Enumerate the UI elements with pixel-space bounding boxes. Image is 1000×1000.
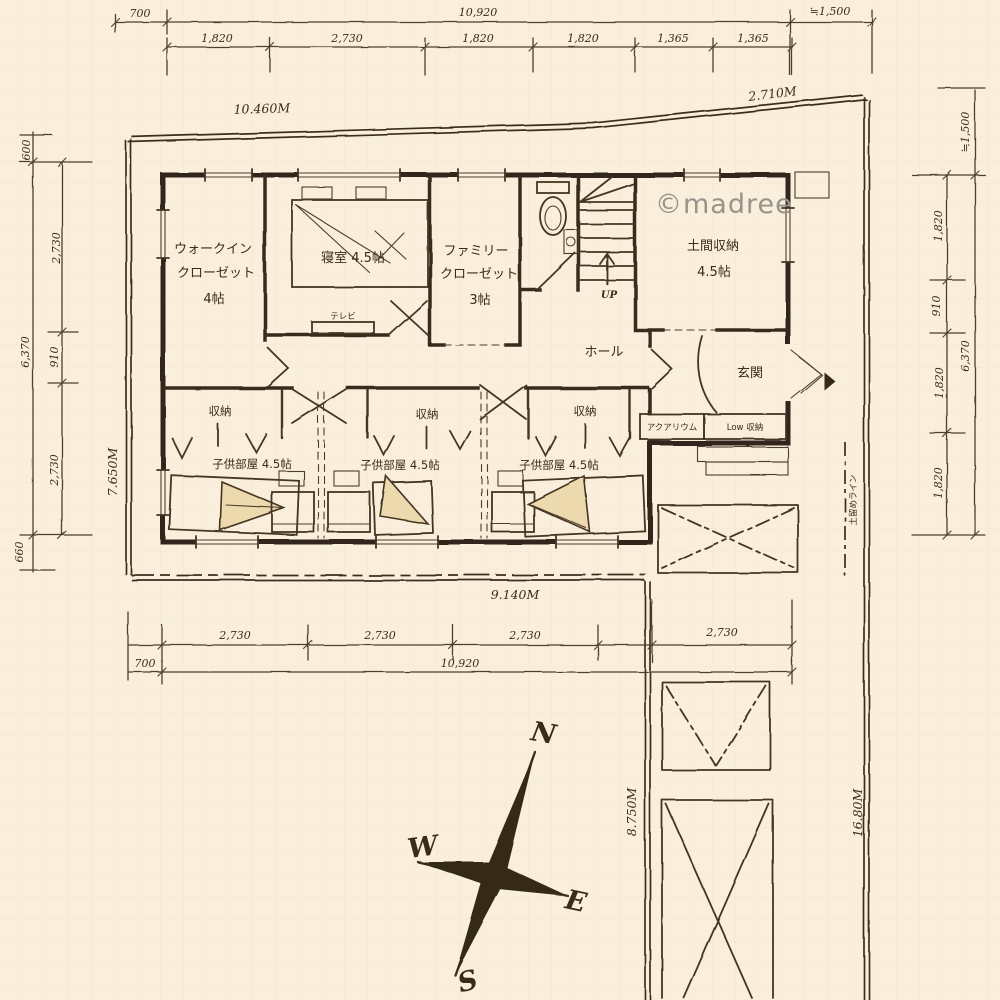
- dim-bottom-total: 10,920: [441, 657, 480, 670]
- watermark: ©madree: [655, 189, 793, 220]
- site-edge-right: 16.80M: [850, 788, 865, 838]
- room-label-kids: 子供部屋 4.5帖: [519, 458, 598, 472]
- room-label-kids: 子供部屋 4.5帖: [212, 457, 291, 471]
- room-label-doma: 土間収納: [687, 239, 739, 254]
- dim-left-seg: 910: [48, 347, 61, 368]
- dim-left-bottom: 660: [13, 542, 26, 563]
- site-corner-marker: [124, 133, 132, 141]
- dim-bottom-seg: 2,730: [363, 629, 396, 642]
- tv-label: テレビ: [330, 312, 356, 322]
- room-label-genkan: 玄関: [737, 366, 763, 381]
- dim-top-seg: 2,730: [330, 32, 363, 45]
- closet-label: 収納: [209, 404, 232, 418]
- room-label-family-closet-size: 3帖: [469, 293, 490, 308]
- dim-left-total: 6,370: [19, 336, 32, 368]
- dim-bottom-seg: 2,730: [218, 629, 251, 642]
- retaining-line-label: 土留めライン: [848, 474, 859, 525]
- dim-right-seg: 1,820: [933, 367, 946, 399]
- floor-plan-drawing: 700 10,920 ≒1,500 1,820 2,730 1,820 1,82…: [0, 0, 1000, 1000]
- dim-right-seg: 910: [930, 296, 943, 317]
- dim-right-approx: ≒1,500: [959, 112, 972, 153]
- room-label-hall: ホール: [584, 345, 623, 360]
- site-edge-left: 7.650M: [105, 447, 120, 497]
- dim-left-seg: 2,730: [48, 454, 61, 487]
- aquarium-label: アクアリウム: [647, 423, 698, 433]
- dim-bottom-offset: 700: [135, 657, 156, 670]
- dim-top-seg: 1,365: [657, 32, 689, 45]
- dim-top-seg: 1,820: [201, 32, 233, 45]
- dim-top-offset: 700: [130, 7, 151, 20]
- site-corner-marker: [644, 574, 652, 582]
- dim-left-top: 600: [20, 140, 33, 161]
- room-label-wic: ウォークイン: [174, 242, 252, 257]
- dim-top-seg: 1,820: [567, 32, 599, 45]
- dim-top-seg: 1,820: [462, 32, 494, 45]
- site-edge-inner-right: 8.750M: [624, 787, 639, 837]
- dim-top-approx: ≒1,500: [810, 5, 851, 18]
- site-edge-top: 10.460M: [233, 100, 291, 117]
- dim-right-total: 6,370: [959, 340, 972, 372]
- dim-bottom-seg: 2,730: [508, 629, 541, 642]
- room-label-wic: クローゼット: [177, 266, 255, 281]
- room-label-wic-size: 4帖: [203, 292, 224, 307]
- room-label-doma-size: 4.5帖: [697, 265, 731, 280]
- dim-right-seg: 1,820: [932, 467, 945, 499]
- dim-right-seg: 1,820: [932, 210, 945, 242]
- closet-label: 収納: [416, 407, 439, 421]
- floor-plan-page: 700 10,920 ≒1,500 1,820 2,730 1,820 1,82…: [0, 0, 1000, 1000]
- room-label-family-closet: ファミリー: [443, 244, 508, 259]
- closet-label: 収納: [574, 404, 597, 418]
- low-storage-label: Low 収納: [727, 422, 763, 433]
- site-edge-bottom: 9.140M: [491, 587, 541, 602]
- dim-bottom-seg: 2,730: [705, 626, 738, 639]
- stairs-up-label: UP: [601, 290, 618, 301]
- dim-left-seg: 2,730: [50, 232, 63, 265]
- site-corner-marker: [124, 574, 132, 582]
- dim-top-seg: 1,365: [737, 32, 769, 45]
- room-label-kids: 子供部屋 4.5帖: [360, 458, 439, 472]
- dim-top-total: 10,920: [459, 6, 498, 19]
- room-label-bedroom: 寝室 4.5帖: [321, 250, 385, 266]
- room-label-family-closet: クローゼット: [440, 267, 518, 282]
